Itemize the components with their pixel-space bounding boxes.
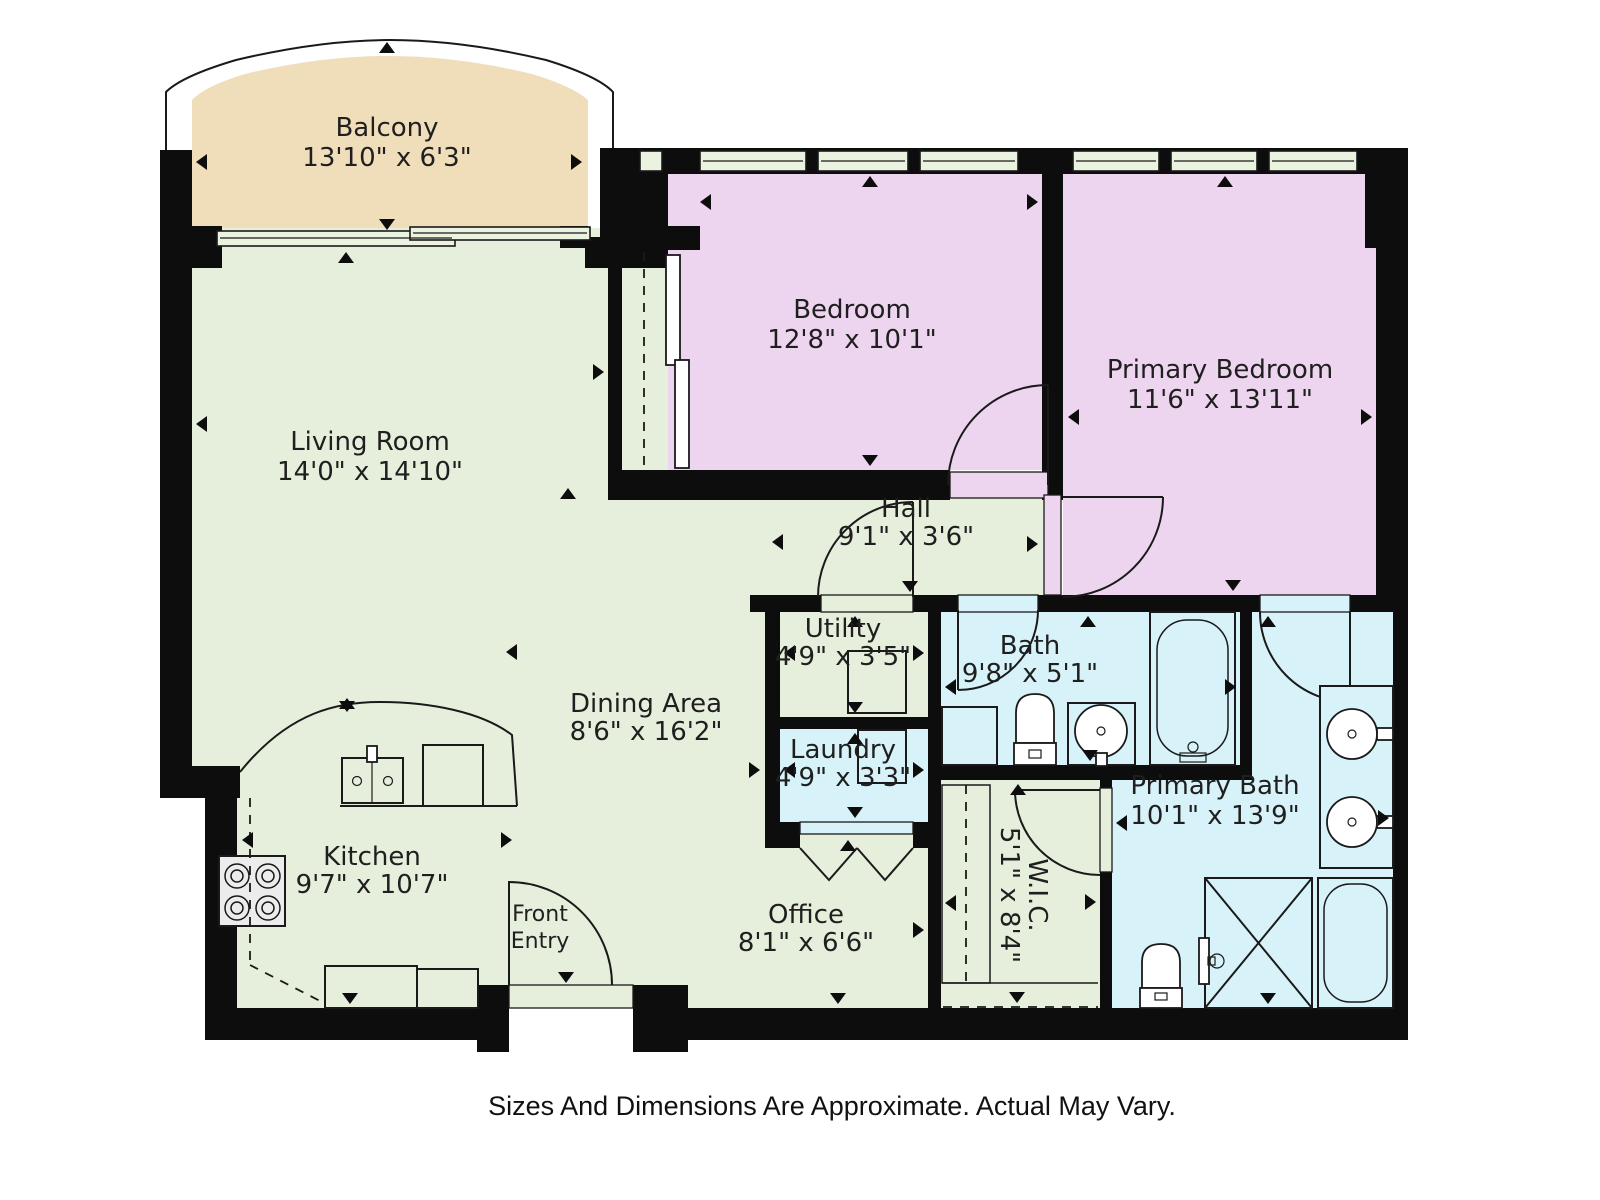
bedroom-label: Bedroom [793, 295, 911, 325]
wic-label: W.I.C. [1022, 858, 1052, 931]
shower-icon [1199, 878, 1312, 1008]
disclaimer-caption: Sizes And Dimensions Are Approximate. Ac… [488, 1091, 1176, 1121]
living-room-label: Living Room [290, 427, 450, 457]
primary-tub-icon [1318, 878, 1393, 1008]
utility-door-sill [821, 595, 913, 612]
bedroom-door-sill [950, 472, 1048, 498]
laundry-label: Laundry [790, 735, 896, 765]
double-vanity-icon [1320, 686, 1393, 868]
lower-counter [417, 969, 478, 1008]
office-label: Office [768, 900, 844, 930]
front-entry-label-1: Front [512, 902, 568, 927]
dining-area-dims: 8'6" x 16'2" [570, 717, 723, 747]
lower-counter [325, 966, 417, 1008]
front-entry-label-2: Entry [511, 929, 570, 954]
bath-door-sill [958, 595, 1038, 612]
toilet-icon [1014, 694, 1056, 765]
stove-icon [219, 856, 285, 926]
bath-dims: 9'8" x 5'1" [962, 659, 1098, 689]
dining-area-label: Dining Area [570, 689, 722, 719]
hall-label: Hall [881, 494, 931, 524]
front-door-sill [509, 985, 633, 1008]
refrigerator-icon [423, 745, 483, 806]
utility-dims: 4'9" x 3'5" [775, 642, 911, 672]
primary-bath-door-sill [1260, 595, 1350, 612]
kitchen-dims: 9'7" x 10'7" [296, 870, 449, 900]
primary-bedroom-dims: 11'6" x 13'11" [1127, 385, 1313, 415]
bath-counter [942, 707, 997, 765]
laundry-dims: 4'9" x 3'3" [775, 763, 911, 793]
primary-bedroom-label: Primary Bedroom [1107, 355, 1333, 385]
primary-toilet-icon [1140, 944, 1182, 1008]
outside-mask [156, 798, 205, 1048]
kitchen-label: Kitchen [323, 842, 421, 872]
bathtub-icon [1150, 612, 1235, 765]
hall-dims: 9'1" x 3'6" [838, 522, 974, 552]
primary-bedroom-door-sill [1044, 495, 1061, 595]
balcony-dims: 13'10" x 6'3" [302, 143, 471, 173]
bath-label: Bath [1000, 631, 1060, 661]
balcony-label: Balcony [335, 113, 438, 143]
sliding-panel-icon [675, 360, 689, 468]
laundry-door-sill [800, 822, 913, 834]
bedroom-dims: 12'8" x 10'1" [767, 325, 936, 355]
floorplan-canvas: Balcony 13'10" x 6'3" Living Room 14'0" … [0, 0, 1600, 1200]
office-dims: 8'1" x 6'6" [738, 928, 874, 958]
window-icon [640, 151, 662, 171]
primary-bath-label: Primary Bath [1130, 771, 1299, 801]
primary-bath-dims: 10'1" x 13'9" [1130, 801, 1299, 831]
living-room-dims: 14'0" x 14'10" [277, 457, 463, 487]
utility-label: Utility [805, 614, 881, 644]
wic-door-sill [1100, 788, 1112, 872]
wic-dims: 5'1" x 8'4" [994, 827, 1024, 963]
bath-sink-icon [1068, 703, 1135, 766]
sliding-panel-icon [666, 255, 680, 365]
floorplan-page: Balcony 13'10" x 6'3" Living Room 14'0" … [0, 0, 1600, 1200]
